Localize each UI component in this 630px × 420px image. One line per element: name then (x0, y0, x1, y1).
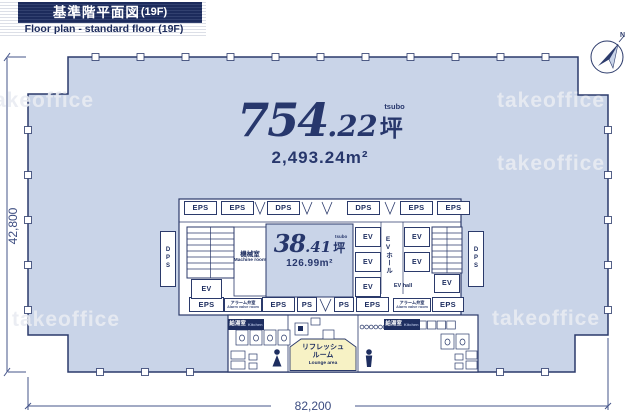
alarm-valve-room-en: Alarm valve room (396, 305, 428, 310)
page-title-floor: (19F) (141, 7, 167, 18)
page-subtitle: Floor plan - standard floor (19F) (3, 24, 205, 35)
kitchen-jp: 給湯室 (385, 322, 402, 328)
eps-label: EPS (356, 297, 389, 312)
main-area-sqm-unit: m² (346, 148, 369, 167)
eps-label: EPS (184, 201, 217, 215)
staircase-right (432, 227, 462, 273)
ev-label: EV (404, 227, 430, 247)
dps-label: DPS (267, 201, 300, 215)
main-area-tsubo-int: 754 (237, 93, 327, 147)
lounge-jp-line2: ルーム (313, 352, 334, 359)
title-badge: 基準階平面図 (19F) (18, 2, 202, 23)
lounge-label: リフレッシュ ルーム Lounge area (288, 344, 358, 366)
eps-label: EPS (432, 297, 464, 312)
kitchen-label: 給湯室 Kitchen (228, 319, 264, 330)
main-area-tsubo-dec: .22 (327, 109, 377, 143)
dps-shaft-label: DPS (160, 231, 176, 287)
ev-label: EV (355, 252, 381, 272)
header: 基準階平面図 (19F) Floor plan - standard floor… (0, 0, 206, 38)
dimension-height: 42,800 (6, 191, 20, 261)
alarm-valve-room-label: アラーム弁室 Alarm valve room (224, 298, 262, 312)
dimension-width: 82,200 (273, 399, 353, 413)
alarm-valve-room-en: Alarm valve room (227, 305, 259, 310)
tsubo-superscript: tsubo (335, 234, 347, 239)
watermark: takeoffice (492, 307, 600, 330)
core-area-size: 38.41tsubo坪 126.99m² (266, 229, 353, 269)
ev-label: EV (434, 274, 460, 293)
eps-label: EPS (262, 297, 295, 312)
watermark: takeoffice (0, 89, 94, 112)
kitchen-en: Kitchen (248, 323, 263, 327)
core-area-tsubo-int: 38 (274, 229, 305, 258)
ev-hall-label: EVホール (384, 236, 391, 286)
male-icon (366, 349, 372, 367)
kitchen-en: Kitchen (404, 323, 419, 327)
watermark: takeoffice (497, 152, 605, 175)
alarm-valve-room-label: アラーム弁室 Alarm valve room (393, 298, 431, 312)
ps-label: PS (297, 297, 317, 312)
lounge-jp-line1: リフレッシュ (302, 344, 344, 351)
ps-label: PS (334, 297, 354, 312)
lounge-en: Lounge area (288, 361, 358, 366)
core-area-sqm: 126.99 (286, 258, 320, 269)
tsubo-unit: 坪 (380, 115, 403, 141)
compass-north-label: N (620, 32, 625, 39)
tsubo-superscript: tsubo (384, 102, 404, 111)
watermark: takeoffice (497, 89, 605, 112)
eps-label: EPS (221, 201, 254, 215)
eps-label: EPS (189, 297, 224, 312)
eps-label: EPS (400, 201, 433, 215)
ev-label: EV (404, 252, 430, 272)
ev-hall-en-label: EV hall (386, 283, 420, 289)
core-area-sqm-unit: m² (320, 258, 333, 269)
compass-icon: N (591, 32, 625, 73)
floor-plan-page: takeoffice takeoffice takeoffice takeoff… (0, 0, 630, 420)
tsubo-unit: 坪 (333, 241, 345, 255)
kitchen-jp: 給湯室 (229, 322, 246, 328)
eps-label: EPS (437, 201, 470, 215)
ev-label: EV (355, 277, 381, 297)
main-area-size: 754.22tsubo坪 2,493.24m² (225, 93, 415, 168)
dps-label: DPS (347, 201, 380, 215)
ev-label: EV (191, 279, 222, 299)
main-area-sqm: 2,493.24 (272, 148, 346, 167)
ev-label: EV (355, 227, 381, 247)
page-title: 基準階平面図 (53, 6, 140, 20)
core-area-tsubo-dec: .41 (305, 238, 331, 256)
kitchen-label: 給湯室 Kitchen (384, 319, 420, 330)
dps-shaft-label: DPS (468, 231, 484, 287)
